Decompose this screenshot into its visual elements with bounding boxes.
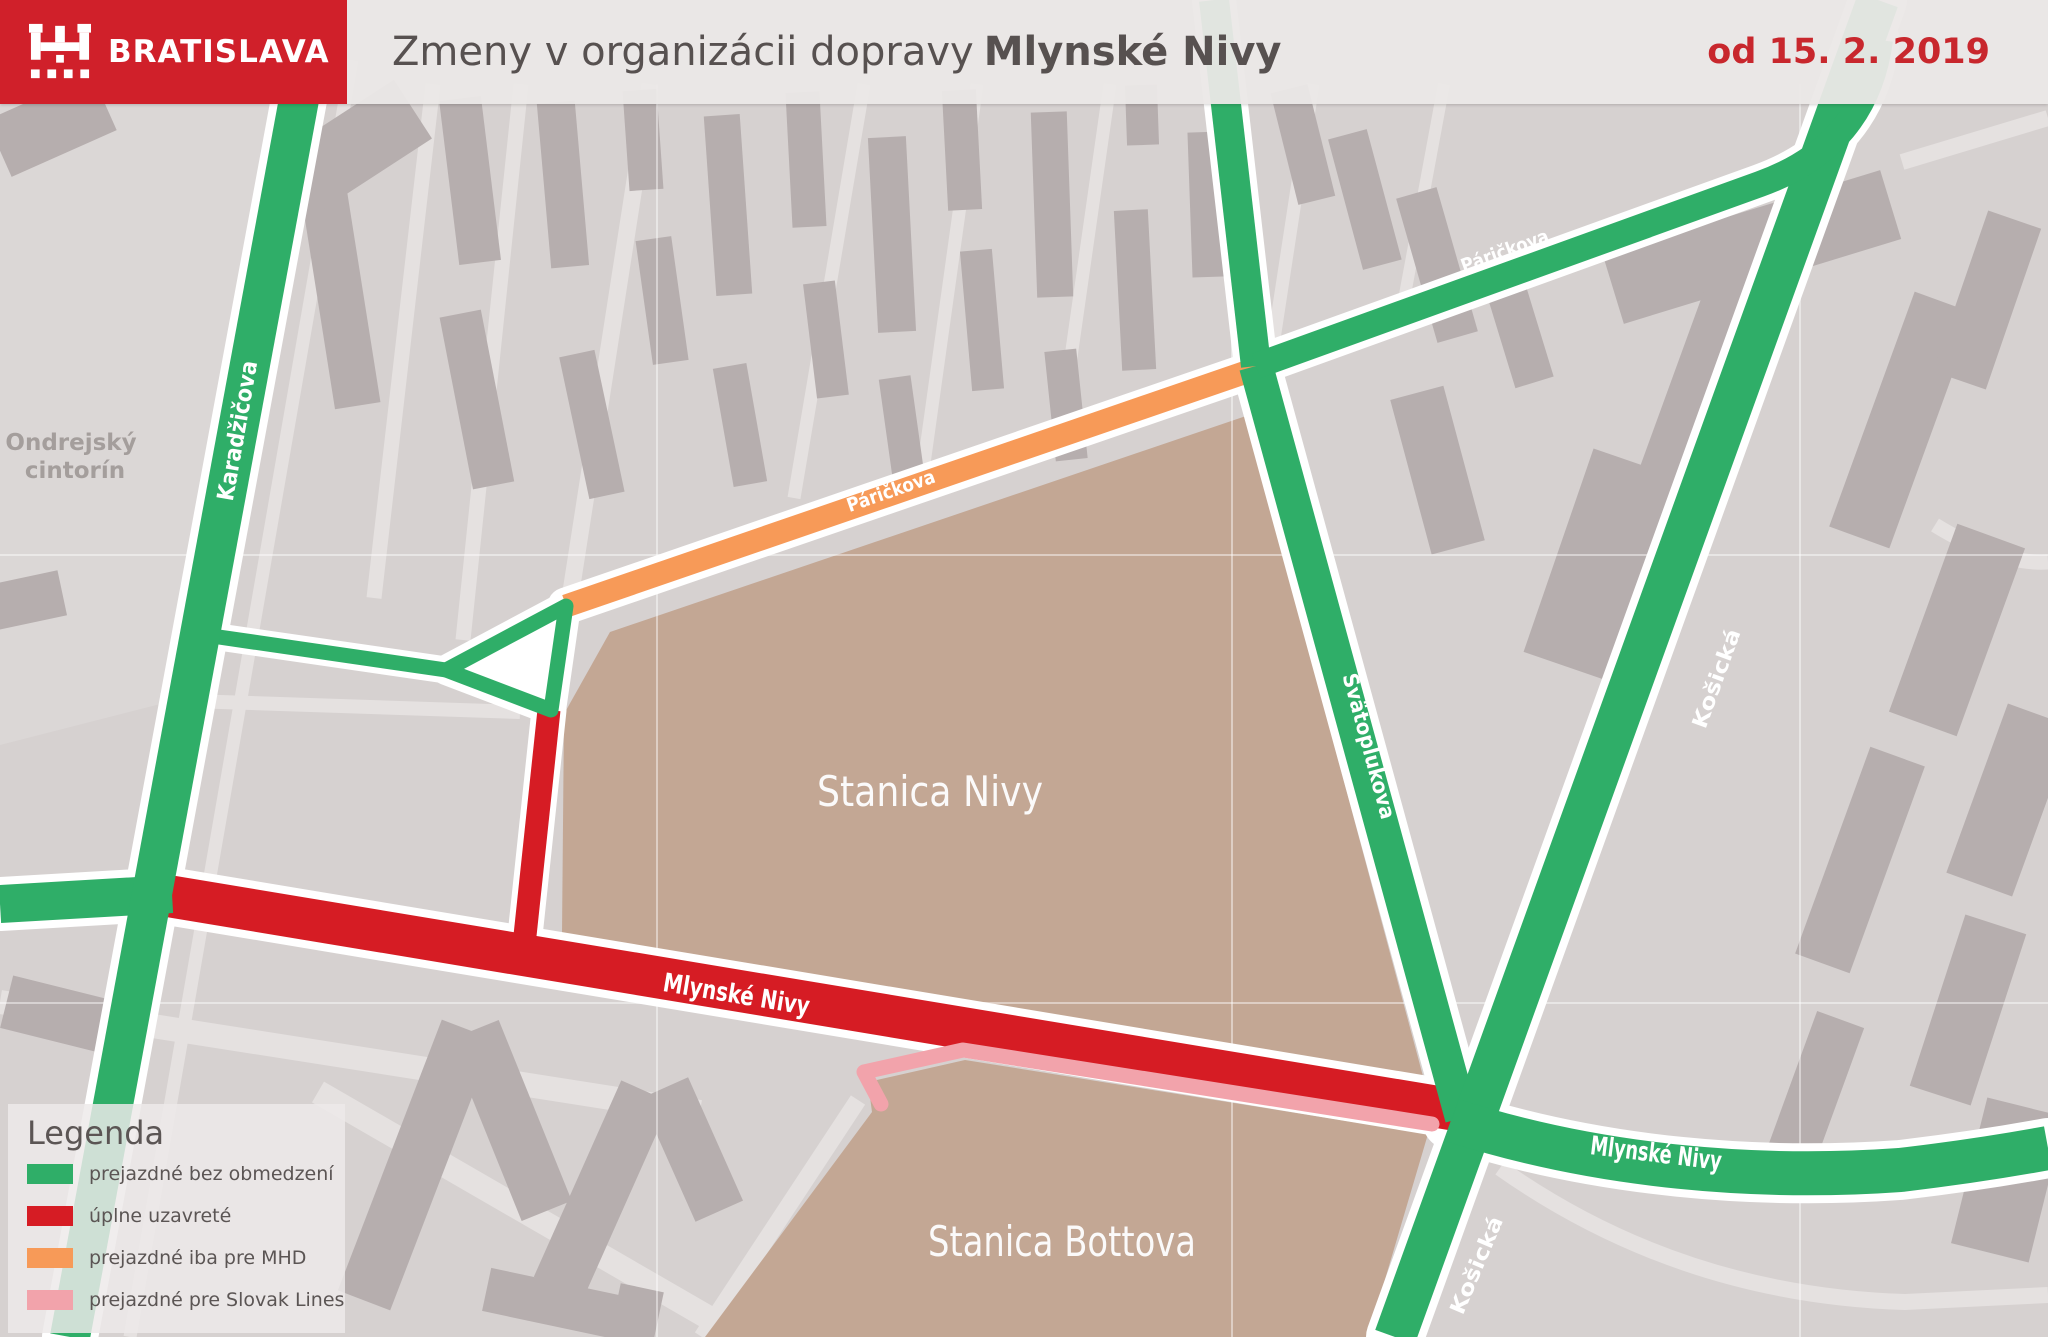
page-title-regular: Zmeny v organizácii dopravy [392, 29, 974, 75]
legend-label-slovak-lines: prejazdné pre Slovak Lines [89, 1289, 344, 1311]
building [785, 91, 826, 228]
legend-item-open: prejazdné bez obmedzení [27, 1164, 345, 1184]
date-label: od 15. 2. 2019 [1707, 0, 1990, 104]
legend-label-open: prejazdné bez obmedzení [89, 1163, 334, 1185]
legend-label-mhd: prejazdné iba pre MHD [89, 1247, 306, 1269]
legend-swatch-open [27, 1164, 73, 1184]
legend-item-closed: úplne uzavreté [27, 1206, 345, 1226]
bratislava-castle-icon [29, 23, 91, 81]
logo-text: BRATISLAVA [108, 34, 330, 70]
legend-label-closed: úplne uzavreté [89, 1205, 231, 1227]
building [942, 89, 982, 211]
logo-block: BRATISLAVA [0, 0, 347, 104]
legend-item-mhd: prejazdné iba pre MHD [27, 1248, 345, 1268]
legend-rows: prejazdné bez obmedzení úplne uzavreté p… [8, 1164, 345, 1310]
area-label-stanica-nivy: Stanica Nivy [817, 767, 1043, 816]
legend-swatch-closed [27, 1206, 73, 1226]
page-title: Zmeny v organizácii dopravy Mlynské Nivy [392, 0, 1281, 104]
building [1031, 111, 1073, 297]
legend-title: Legenda [27, 1114, 345, 1152]
legend-item-slovak-lines: prejazdné pre Slovak Lines [27, 1290, 345, 1310]
area-label-cemetery-line2: cintorín [25, 458, 125, 484]
page-title-bold: Mlynské Nivy [984, 29, 1282, 75]
header-bar: BRATISLAVA Zmeny v organizácii dopravy M… [0, 0, 2048, 104]
area-label-cemetery-line1: Ondrejský [5, 430, 136, 456]
area-label-stanica-bottova: Stanica Bottova [928, 1217, 1196, 1266]
legend-panel: Legenda prejazdné bez obmedzení úplne uz… [8, 1104, 345, 1333]
legend-swatch-mhd [27, 1248, 73, 1268]
legend-swatch-slovak-lines [27, 1290, 73, 1310]
infographic: Karadžičova Páričkova Páričkova Svätoplu… [0, 0, 2048, 1337]
